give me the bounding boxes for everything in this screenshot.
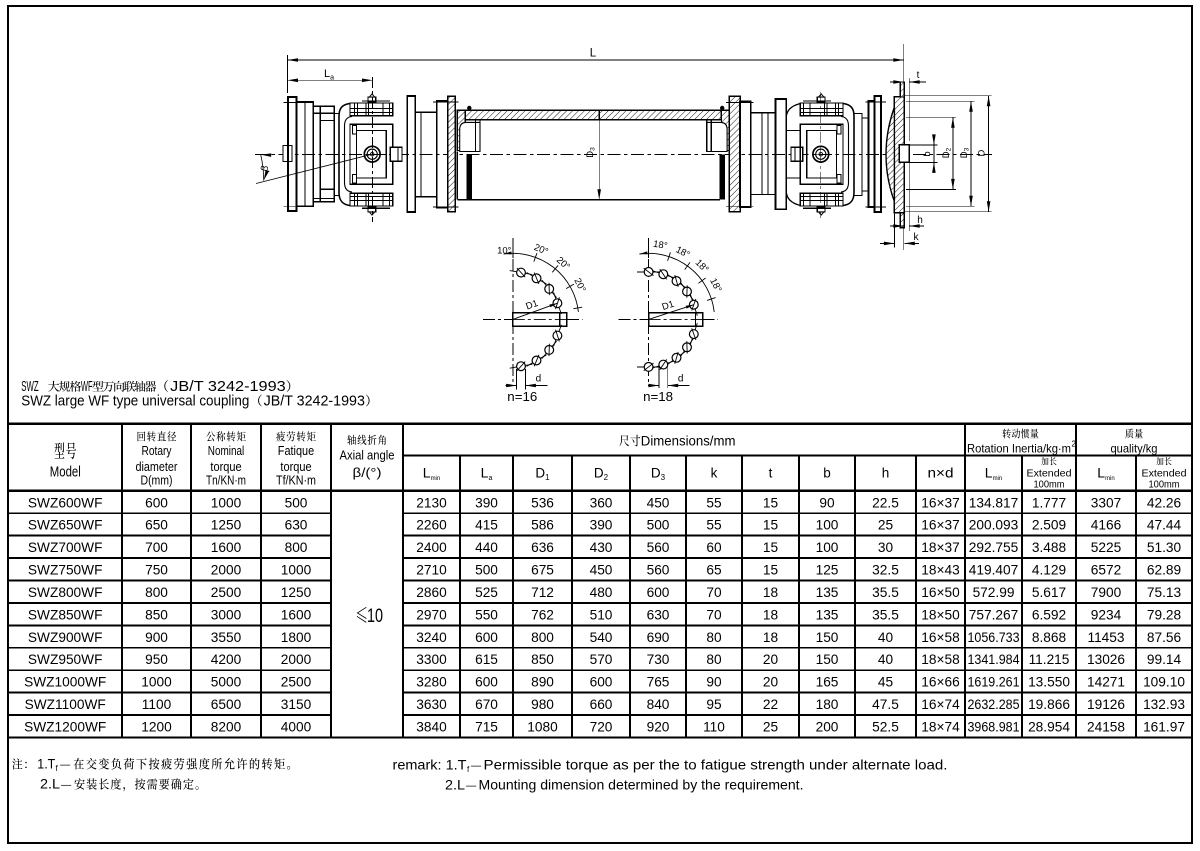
svg-text:1250: 1250 — [281, 585, 312, 600]
svg-text:850: 850 — [531, 652, 554, 667]
svg-text:415: 415 — [475, 518, 498, 533]
svg-text:6.592: 6.592 — [1032, 607, 1066, 622]
svg-text:k: k — [711, 466, 718, 481]
svg-text:500: 500 — [285, 495, 308, 510]
svg-text:Mounting dimension determined: Mounting dimension determined by the req… — [479, 778, 804, 793]
svg-text:600: 600 — [590, 675, 613, 690]
svg-text:3630: 3630 — [416, 697, 447, 712]
svg-text:Nominal: Nominal — [208, 444, 244, 458]
svg-text:419.407: 419.407 — [969, 563, 1018, 578]
svg-text:h: h — [882, 466, 890, 481]
svg-text:4200: 4200 — [211, 652, 242, 667]
svg-text:500: 500 — [647, 518, 670, 533]
svg-text:1000: 1000 — [141, 675, 172, 690]
svg-text:80: 80 — [706, 630, 722, 645]
svg-text:t: t — [769, 466, 773, 481]
svg-text:2400: 2400 — [416, 540, 447, 555]
svg-text:3.488: 3.488 — [1032, 540, 1067, 555]
svg-text:110: 110 — [703, 720, 725, 735]
svg-text:1080: 1080 — [527, 720, 558, 735]
svg-text:132.93: 132.93 — [1143, 697, 1185, 712]
svg-text:22: 22 — [763, 697, 778, 712]
svg-text:SWZ1100WF: SWZ1100WF — [25, 697, 106, 712]
svg-text:150: 150 — [816, 652, 839, 667]
svg-text:3840: 3840 — [416, 720, 447, 735]
svg-text:15: 15 — [763, 540, 779, 555]
svg-text:3300: 3300 — [416, 652, 447, 667]
svg-text:80: 80 — [706, 652, 722, 667]
svg-text:Model: Model — [50, 464, 81, 480]
svg-text:n=16: n=16 — [507, 389, 537, 404]
svg-text:500: 500 — [475, 563, 498, 578]
svg-text:Rotary: Rotary — [142, 444, 173, 458]
svg-text:712: 712 — [531, 585, 554, 600]
svg-text:1000: 1000 — [281, 563, 312, 578]
svg-text:2260: 2260 — [416, 518, 447, 533]
svg-text:2000: 2000 — [281, 652, 312, 667]
svg-text:2500: 2500 — [211, 585, 242, 600]
svg-text:1600: 1600 — [211, 540, 242, 555]
svg-text:L: L — [590, 48, 597, 60]
svg-text:762: 762 — [531, 607, 554, 622]
svg-text:165: 165 — [816, 675, 839, 690]
svg-text:6572: 6572 — [1091, 563, 1121, 578]
svg-text:2970: 2970 — [416, 607, 447, 622]
svg-text:1800: 1800 — [281, 630, 312, 645]
svg-text:900: 900 — [145, 630, 168, 645]
svg-text:660: 660 — [590, 697, 613, 712]
svg-text:Fatique: Fatique — [278, 444, 314, 458]
svg-text:19.866: 19.866 — [1028, 697, 1070, 712]
svg-text:SWZ800WF: SWZ800WF — [28, 585, 103, 600]
svg-text:1250: 1250 — [211, 518, 242, 533]
svg-text:525: 525 — [475, 585, 498, 600]
svg-text:30: 30 — [878, 540, 894, 555]
svg-text:8200: 8200 — [211, 720, 242, 735]
svg-text:Extended: Extended — [1142, 468, 1187, 480]
svg-text:1619.261: 1619.261 — [968, 675, 1020, 690]
svg-text:7900: 7900 — [1091, 585, 1122, 600]
svg-text:D(mm): D(mm) — [141, 474, 173, 488]
svg-text:t: t — [917, 70, 920, 81]
svg-text:2.L: 2.L — [40, 777, 61, 792]
svg-text:600: 600 — [647, 585, 670, 600]
svg-text:40: 40 — [878, 630, 894, 645]
svg-text:360: 360 — [590, 495, 613, 510]
svg-text:586: 586 — [531, 518, 554, 533]
svg-text:75.13: 75.13 — [1147, 585, 1182, 600]
svg-text:SWZ850WF: SWZ850WF — [28, 607, 103, 622]
svg-text:SWZ950WF: SWZ950WF — [28, 652, 103, 667]
svg-text:65: 65 — [706, 563, 722, 578]
svg-text:SWZ650WF: SWZ650WF — [28, 518, 103, 533]
svg-text:n×d: n×d — [928, 466, 954, 481]
svg-text:615: 615 — [475, 652, 498, 667]
svg-text:480: 480 — [590, 585, 613, 600]
svg-text:950: 950 — [145, 652, 168, 667]
svg-text:25: 25 — [763, 720, 779, 735]
svg-text:4000: 4000 — [281, 720, 312, 735]
svg-text:28.954: 28.954 — [1028, 720, 1070, 735]
svg-text:Tn/KN·m: Tn/KN·m — [206, 474, 246, 488]
svg-text:Tf/KN·m: Tf/KN·m — [276, 474, 316, 488]
svg-text:440: 440 — [475, 540, 498, 555]
svg-text:torque: torque — [280, 460, 311, 474]
svg-text:15: 15 — [763, 563, 779, 578]
svg-text:292.755: 292.755 — [969, 540, 1019, 555]
svg-text:100: 100 — [816, 518, 839, 533]
svg-text:630: 630 — [647, 607, 670, 622]
svg-text:10°: 10° — [497, 245, 512, 256]
svg-text:134.817: 134.817 — [969, 495, 1018, 510]
svg-text:D: D — [977, 149, 988, 156]
svg-text:h: h — [917, 215, 923, 226]
svg-text:b: b — [922, 151, 933, 156]
svg-text:Extended: Extended — [1027, 468, 1072, 480]
svg-text:2.509: 2.509 — [1032, 518, 1066, 533]
svg-text:9234: 9234 — [1091, 607, 1122, 622]
svg-text:1600: 1600 — [281, 607, 312, 622]
svg-text:536: 536 — [531, 495, 554, 510]
svg-text:100: 100 — [816, 540, 839, 555]
svg-text:16×50: 16×50 — [921, 585, 960, 600]
svg-text:45: 45 — [878, 675, 894, 690]
svg-text:47.44: 47.44 — [1147, 518, 1182, 533]
svg-text:remark: 1.T: remark: 1.T — [393, 758, 467, 773]
svg-text:800: 800 — [145, 585, 168, 600]
svg-text:572.99: 572.99 — [973, 585, 1015, 600]
svg-text:70: 70 — [706, 607, 722, 622]
svg-text:200: 200 — [816, 720, 839, 735]
svg-text:600: 600 — [475, 630, 498, 645]
svg-text:Dimensions/mm: Dimensions/mm — [641, 432, 736, 448]
svg-text:715: 715 — [475, 720, 498, 735]
svg-text:690: 690 — [647, 630, 670, 645]
svg-text:99.14: 99.14 — [1147, 652, 1182, 667]
svg-text:10: 10 — [367, 606, 383, 627]
svg-text:19126: 19126 — [1087, 697, 1125, 712]
svg-text:16×37: 16×37 — [921, 518, 959, 533]
svg-text:1200: 1200 — [141, 720, 172, 735]
svg-text:650: 650 — [145, 518, 168, 533]
svg-text:52.5: 52.5 — [872, 720, 899, 735]
svg-text:2632.285: 2632.285 — [968, 697, 1020, 712]
svg-text:161.97: 161.97 — [1143, 720, 1185, 735]
svg-text:18×50: 18×50 — [921, 607, 960, 622]
svg-text:800: 800 — [531, 630, 554, 645]
svg-text:Rotation Inertia/kg·m: Rotation Inertia/kg·m — [967, 441, 1071, 455]
svg-text:62.89: 62.89 — [1147, 563, 1181, 578]
svg-text:850: 850 — [145, 607, 168, 622]
svg-text:18°: 18° — [652, 239, 668, 252]
svg-text:2130: 2130 — [416, 495, 447, 510]
svg-text:890: 890 — [531, 675, 554, 690]
svg-text:920: 920 — [647, 720, 670, 735]
svg-text:18: 18 — [763, 607, 779, 622]
svg-text:18: 18 — [763, 585, 779, 600]
svg-text:Axial angle: Axial angle — [340, 449, 395, 463]
svg-text:540: 540 — [590, 630, 613, 645]
svg-text:560: 560 — [647, 563, 670, 578]
svg-text:150: 150 — [816, 630, 839, 645]
svg-text:670: 670 — [475, 697, 498, 712]
svg-text:135: 135 — [816, 607, 839, 622]
svg-text:4.129: 4.129 — [1032, 563, 1066, 578]
svg-text:18×43: 18×43 — [921, 563, 960, 578]
svg-text:20: 20 — [763, 675, 779, 690]
svg-text:16×74: 16×74 — [921, 697, 960, 712]
svg-text:2.L: 2.L — [445, 778, 466, 793]
svg-text:550: 550 — [475, 607, 498, 622]
svg-text:200.093: 200.093 — [969, 518, 1019, 533]
svg-text:765: 765 — [647, 675, 670, 690]
svg-text:d: d — [536, 374, 542, 385]
svg-text:3240: 3240 — [416, 630, 447, 645]
svg-text:5.617: 5.617 — [1032, 585, 1066, 600]
svg-text:180: 180 — [816, 697, 839, 712]
svg-text:600: 600 — [475, 675, 498, 690]
svg-text:6500: 6500 — [211, 697, 242, 712]
svg-text:70: 70 — [706, 585, 722, 600]
svg-text:3000: 3000 — [211, 607, 242, 622]
svg-text:SWZ1000WF: SWZ1000WF — [24, 675, 106, 690]
svg-text:2500: 2500 — [281, 675, 312, 690]
svg-text:100mm: 100mm — [1034, 480, 1065, 491]
svg-text:5000: 5000 — [211, 675, 242, 690]
svg-text:3280: 3280 — [416, 675, 447, 690]
svg-text:90: 90 — [706, 675, 722, 690]
svg-text:125: 125 — [816, 563, 839, 578]
svg-text:25: 25 — [878, 518, 894, 533]
svg-text:15: 15 — [763, 495, 779, 510]
svg-text:14271: 14271 — [1087, 675, 1125, 690]
svg-text:135: 135 — [816, 585, 839, 600]
svg-text:1341.984: 1341.984 — [968, 652, 1020, 667]
svg-text:980: 980 — [531, 697, 554, 712]
svg-text:SWZ1200WF: SWZ1200WF — [24, 720, 106, 735]
svg-text:1000: 1000 — [211, 495, 242, 510]
svg-text:13026: 13026 — [1087, 652, 1125, 667]
svg-text:109.10: 109.10 — [1143, 675, 1185, 690]
svg-text:79.28: 79.28 — [1147, 607, 1182, 622]
svg-text:630: 630 — [285, 518, 308, 533]
svg-text:90: 90 — [819, 495, 835, 510]
svg-text:55: 55 — [706, 518, 722, 533]
svg-text:11.215: 11.215 — [1029, 652, 1070, 667]
svg-text:390: 390 — [475, 495, 498, 510]
svg-text:570: 570 — [590, 652, 613, 667]
svg-text:16×37: 16×37 — [921, 495, 959, 510]
svg-text:87.56: 87.56 — [1147, 630, 1182, 645]
svg-text:18: 18 — [763, 630, 779, 645]
svg-text:18×74: 18×74 — [921, 720, 960, 735]
svg-text:d: d — [678, 374, 684, 385]
svg-text:390: 390 — [590, 518, 613, 533]
svg-text:11453: 11453 — [1087, 630, 1124, 645]
svg-text:SWZ750WF: SWZ750WF — [28, 563, 103, 578]
svg-text:430: 430 — [590, 540, 613, 555]
svg-text:510: 510 — [590, 607, 613, 622]
svg-text:18×58: 18×58 — [921, 652, 960, 667]
svg-text:1056.733: 1056.733 — [968, 630, 1020, 645]
svg-text:16×58: 16×58 — [921, 630, 960, 645]
svg-text:2: 2 — [1072, 440, 1077, 449]
svg-text:β/(°): β/(°) — [353, 466, 382, 480]
svg-text:3150: 3150 — [281, 697, 312, 712]
svg-text:35.5: 35.5 — [872, 607, 899, 622]
svg-text:757.267: 757.267 — [969, 607, 1018, 622]
svg-text:800: 800 — [285, 540, 308, 555]
svg-text:quality/kg: quality/kg — [1111, 441, 1158, 455]
svg-text:SWZ large WF type universal co: SWZ large WF type universal coupling — [21, 392, 249, 409]
svg-text:1.777: 1.777 — [1032, 495, 1066, 510]
svg-text:450: 450 — [590, 563, 613, 578]
svg-text:2860: 2860 — [416, 585, 447, 600]
svg-text:SWZ900WF: SWZ900WF — [28, 630, 103, 645]
svg-text:n=18: n=18 — [643, 389, 673, 404]
svg-text:16×66: 16×66 — [921, 675, 960, 690]
svg-text:40: 40 — [878, 652, 894, 667]
svg-text:675: 675 — [531, 563, 554, 578]
svg-text:60: 60 — [706, 540, 722, 555]
svg-text:51.30: 51.30 — [1147, 540, 1182, 555]
svg-text:3968.981: 3968.981 — [968, 720, 1020, 735]
svg-text:24158: 24158 — [1087, 720, 1125, 735]
svg-text:95: 95 — [706, 697, 722, 712]
svg-text:JB/T 3242-1993: JB/T 3242-1993 — [264, 392, 365, 409]
svg-text:720: 720 — [590, 720, 613, 735]
svg-text:18×37: 18×37 — [921, 540, 959, 555]
svg-text:4166: 4166 — [1091, 518, 1122, 533]
svg-text:Permissible torque as per the: Permissible torque as per the to fatigue… — [484, 758, 948, 773]
svg-text:15: 15 — [763, 518, 779, 533]
svg-text:636: 636 — [531, 540, 554, 555]
svg-text:750: 750 — [145, 563, 168, 578]
svg-text:35.5: 35.5 — [872, 585, 899, 600]
svg-text:diameter: diameter — [136, 460, 179, 474]
svg-text:22.5: 22.5 — [872, 495, 899, 510]
svg-text:SWZ700WF: SWZ700WF — [28, 540, 103, 555]
svg-text:2000: 2000 — [211, 563, 242, 578]
svg-text:42.26: 42.26 — [1147, 495, 1182, 510]
svg-text:700: 700 — [145, 540, 168, 555]
svg-text:560: 560 — [647, 540, 670, 555]
svg-text:32.5: 32.5 — [872, 563, 899, 578]
svg-text:600: 600 — [145, 495, 168, 510]
svg-text:1100: 1100 — [142, 697, 172, 712]
svg-text:100mm: 100mm — [1149, 480, 1180, 491]
svg-text:1.T: 1.T — [37, 757, 55, 772]
svg-text:5225: 5225 — [1091, 540, 1122, 555]
svg-text:b: b — [823, 466, 831, 481]
svg-text:3550: 3550 — [211, 630, 242, 645]
svg-text:47.5: 47.5 — [872, 697, 899, 712]
svg-text:2710: 2710 — [416, 563, 447, 578]
svg-text:450: 450 — [647, 495, 670, 510]
svg-text:55: 55 — [706, 495, 722, 510]
svg-text:840: 840 — [647, 697, 670, 712]
svg-text:20: 20 — [763, 652, 779, 667]
svg-text:730: 730 — [647, 652, 670, 667]
svg-text:13.550: 13.550 — [1028, 675, 1070, 690]
svg-text:SWZ600WF: SWZ600WF — [28, 495, 103, 510]
svg-text:8.868: 8.868 — [1032, 630, 1067, 645]
svg-text:torque: torque — [210, 460, 241, 474]
svg-text:3307: 3307 — [1091, 495, 1121, 510]
